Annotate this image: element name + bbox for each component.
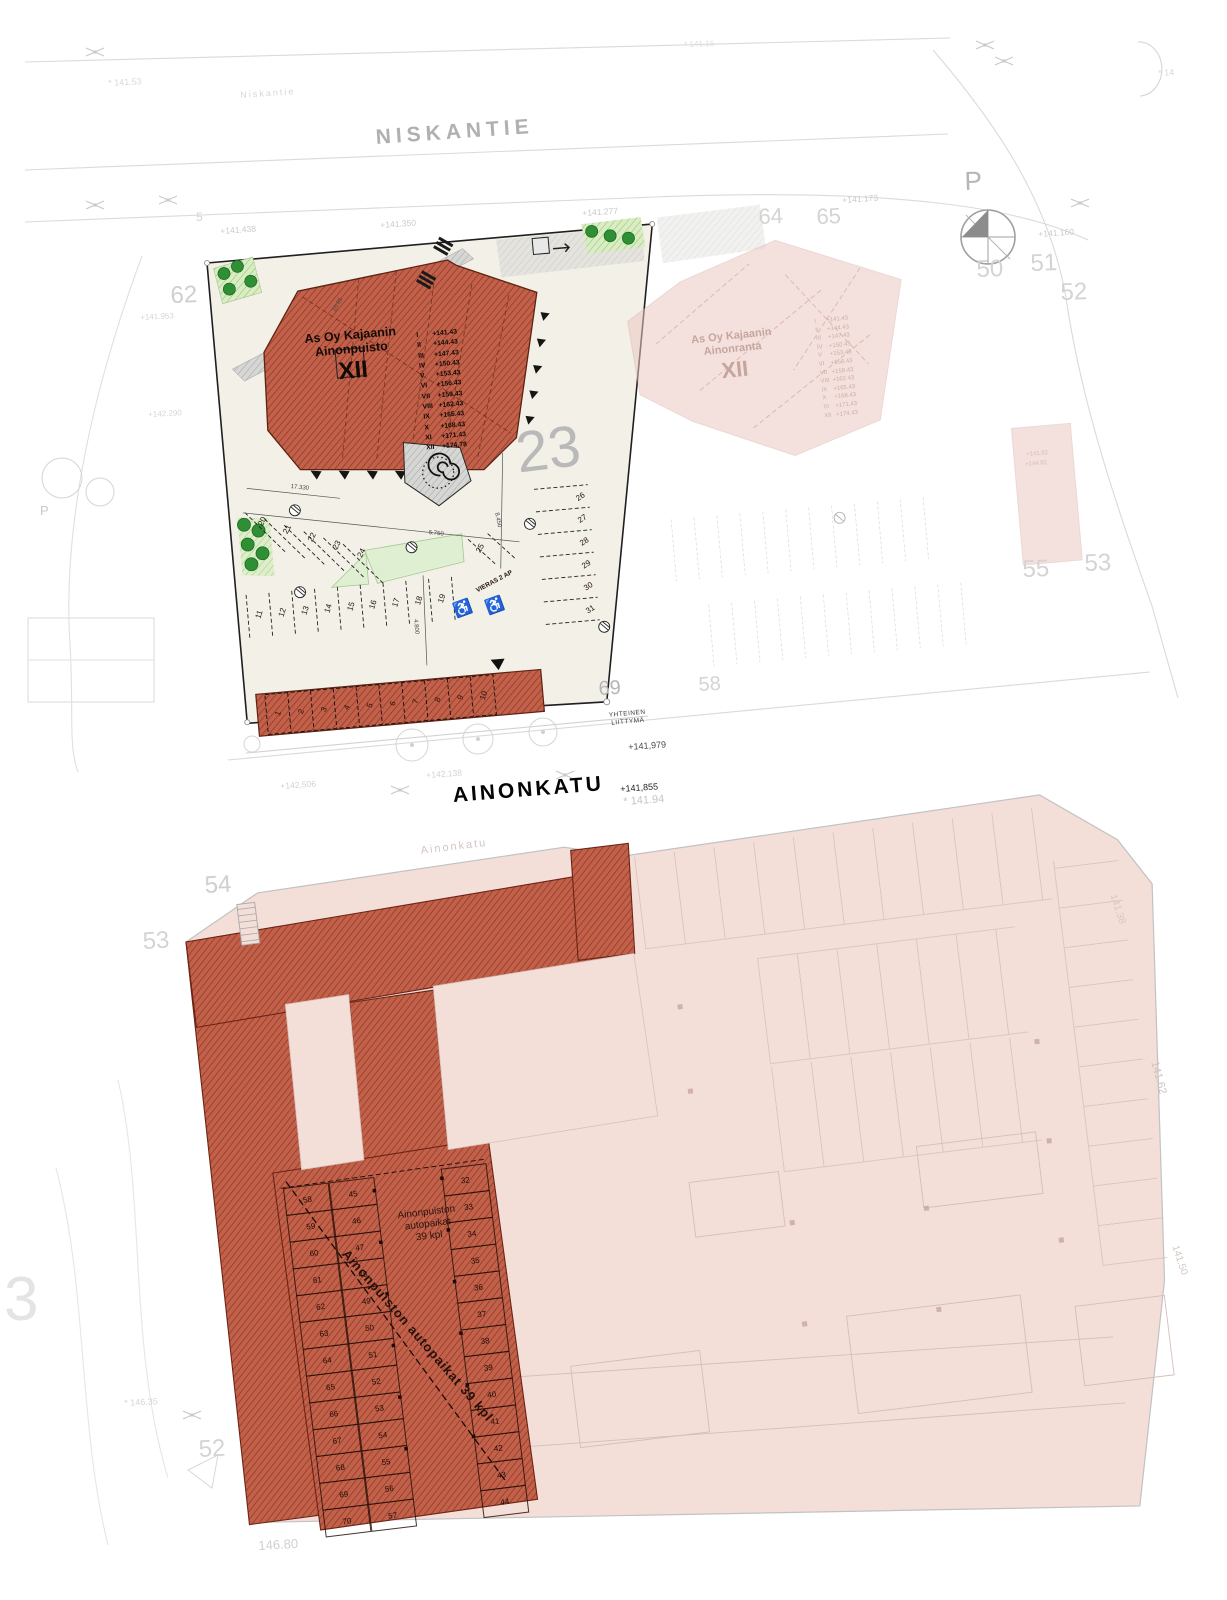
parcel-number: 51: [1030, 249, 1058, 278]
spot-elevation: 146.80: [258, 1536, 298, 1553]
floor-elevation-list-ainonpuisto: I+141.43II+144.43III+147.43IV+150.43V+15…: [416, 326, 483, 454]
spot-elevation: +141.953: [140, 311, 174, 322]
north-arrow-label: P: [964, 165, 982, 197]
parcel-number: 3: [4, 1264, 38, 1335]
stall-number: 10: [470, 672, 497, 718]
upper-site-plan: [204, 179, 1092, 737]
parcel-number: 50: [976, 255, 1004, 284]
stall-number: 20: [249, 510, 275, 532]
stall-number: 22: [299, 526, 325, 548]
stall-number: 24: [348, 541, 374, 563]
parcel-number: P: [40, 503, 49, 518]
spot-elevation: * 146.35: [124, 1396, 158, 1408]
parcel-number: 53: [142, 927, 170, 956]
parcel-number: 5: [196, 210, 203, 224]
parcel-number: 23: [512, 412, 584, 486]
parcel-number: 53: [1084, 549, 1112, 578]
parcel-number: 55: [1022, 555, 1050, 584]
parcel-number: 52: [198, 1435, 226, 1464]
garage-stall-grid: 58596061626364656667686970 4546474849505…: [275, 1147, 532, 1527]
parcel-number: 65: [816, 203, 841, 230]
stall-number: 31: [569, 596, 611, 622]
ainonranta-carport: [1011, 423, 1082, 565]
ainonranta-stalls-faint: [671, 495, 966, 669]
spot-elevation: * 14: [1158, 67, 1175, 78]
stall-numbers-west-row: 2021222324: [249, 501, 379, 574]
site-plan-page: NISKANTIE Niskantie AINONKATU Ainonkatu …: [0, 0, 1227, 1600]
parcel-number: 58: [698, 673, 721, 697]
parcel-number: 69: [598, 677, 621, 701]
stall-number: 23: [323, 534, 349, 556]
parcel-number: 52: [1060, 278, 1088, 307]
parcel-number: 54: [204, 871, 232, 900]
spot-elevation: +142.290: [148, 408, 182, 419]
parcel-number: 62: [170, 281, 198, 310]
garage-stall: 57: [368, 1499, 417, 1532]
site-plan-drawing: [0, 0, 1227, 1600]
spot-elevation: * 141.53: [108, 76, 142, 88]
garage-stall: 70: [322, 1504, 371, 1537]
building-label-ainonpuisto: As Oy Kajaanin Ainonpuisto XII: [290, 323, 414, 389]
stall-number: 21: [274, 518, 300, 540]
parcel-number: 64: [758, 203, 783, 230]
stall-number: 19: [428, 575, 455, 621]
spot-elevation: * 141.16: [684, 39, 714, 49]
garage-stall: 44: [480, 1485, 529, 1518]
